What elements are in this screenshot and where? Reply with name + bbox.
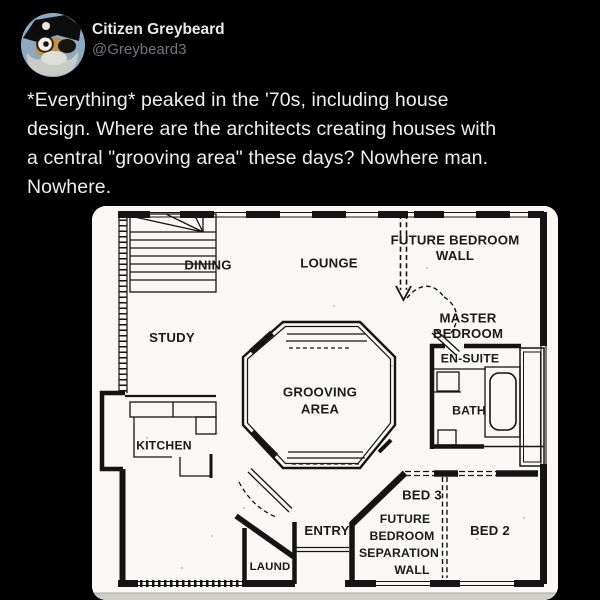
- scan-edge: [92, 593, 558, 600]
- tweet-screen: Citizen Greybeard @Greybeard3 *Everythin…: [0, 0, 600, 600]
- room-label-laundry: LAUND: [250, 561, 291, 573]
- avatar[interactable]: [21, 13, 85, 77]
- room-label-dining: DINING: [184, 258, 231, 273]
- avatar-image: [21, 13, 85, 77]
- room-label-bed2: BED 2: [470, 523, 510, 538]
- tweet-photo-floorplan[interactable]: DINING LOUNGE FUTURE BEDROOM WALL STUDY …: [92, 206, 558, 600]
- tweet-text-line-2: design. Where are the architects creatin…: [27, 115, 587, 144]
- room-label-bath: BATH: [452, 404, 486, 418]
- room-label-kitchen: KITCHEN: [136, 439, 192, 453]
- room-label-bed3: BED 3: [402, 488, 442, 503]
- tweet-text-line-4: Nowhere.: [27, 173, 587, 202]
- room-label-future-bedroom-wall-2: WALL: [436, 248, 474, 263]
- tweet-text: *Everything* peaked in the '70s, includi…: [27, 86, 587, 202]
- room-label-separation-2: BEDROOM: [369, 529, 434, 543]
- room-label-future-bedroom-wall-1: FUTURE BEDROOM: [391, 233, 520, 248]
- tweet-text-line-3: a central "grooving area" these days? No…: [27, 144, 587, 173]
- room-label-lounge: LOUNGE: [300, 256, 358, 271]
- room-label-separation-1: FUTURE: [380, 512, 431, 526]
- author-handle[interactable]: @Greybeard3: [92, 40, 225, 60]
- room-label-separation-3: SEPARATION: [359, 546, 439, 560]
- room-label-master-2: BEDROOM: [433, 326, 503, 341]
- author-block[interactable]: Citizen Greybeard @Greybeard3: [92, 19, 225, 60]
- room-label-separation-4: WALL: [394, 563, 430, 577]
- room-label-entry: ENTRY: [304, 523, 349, 538]
- author-name[interactable]: Citizen Greybeard: [92, 19, 225, 40]
- room-label-en-suite: EN-SUITE: [441, 352, 499, 366]
- tweet-text-line-1: *Everything* peaked in the '70s, includi…: [27, 86, 587, 115]
- room-label-master-1: MASTER: [440, 311, 497, 326]
- room-label-grooving-1: GROOVING: [283, 385, 357, 400]
- floorplan-image: DINING LOUNGE FUTURE BEDROOM WALL STUDY …: [92, 206, 558, 600]
- room-label-grooving-2: AREA: [301, 402, 339, 417]
- room-label-study: STUDY: [149, 330, 195, 345]
